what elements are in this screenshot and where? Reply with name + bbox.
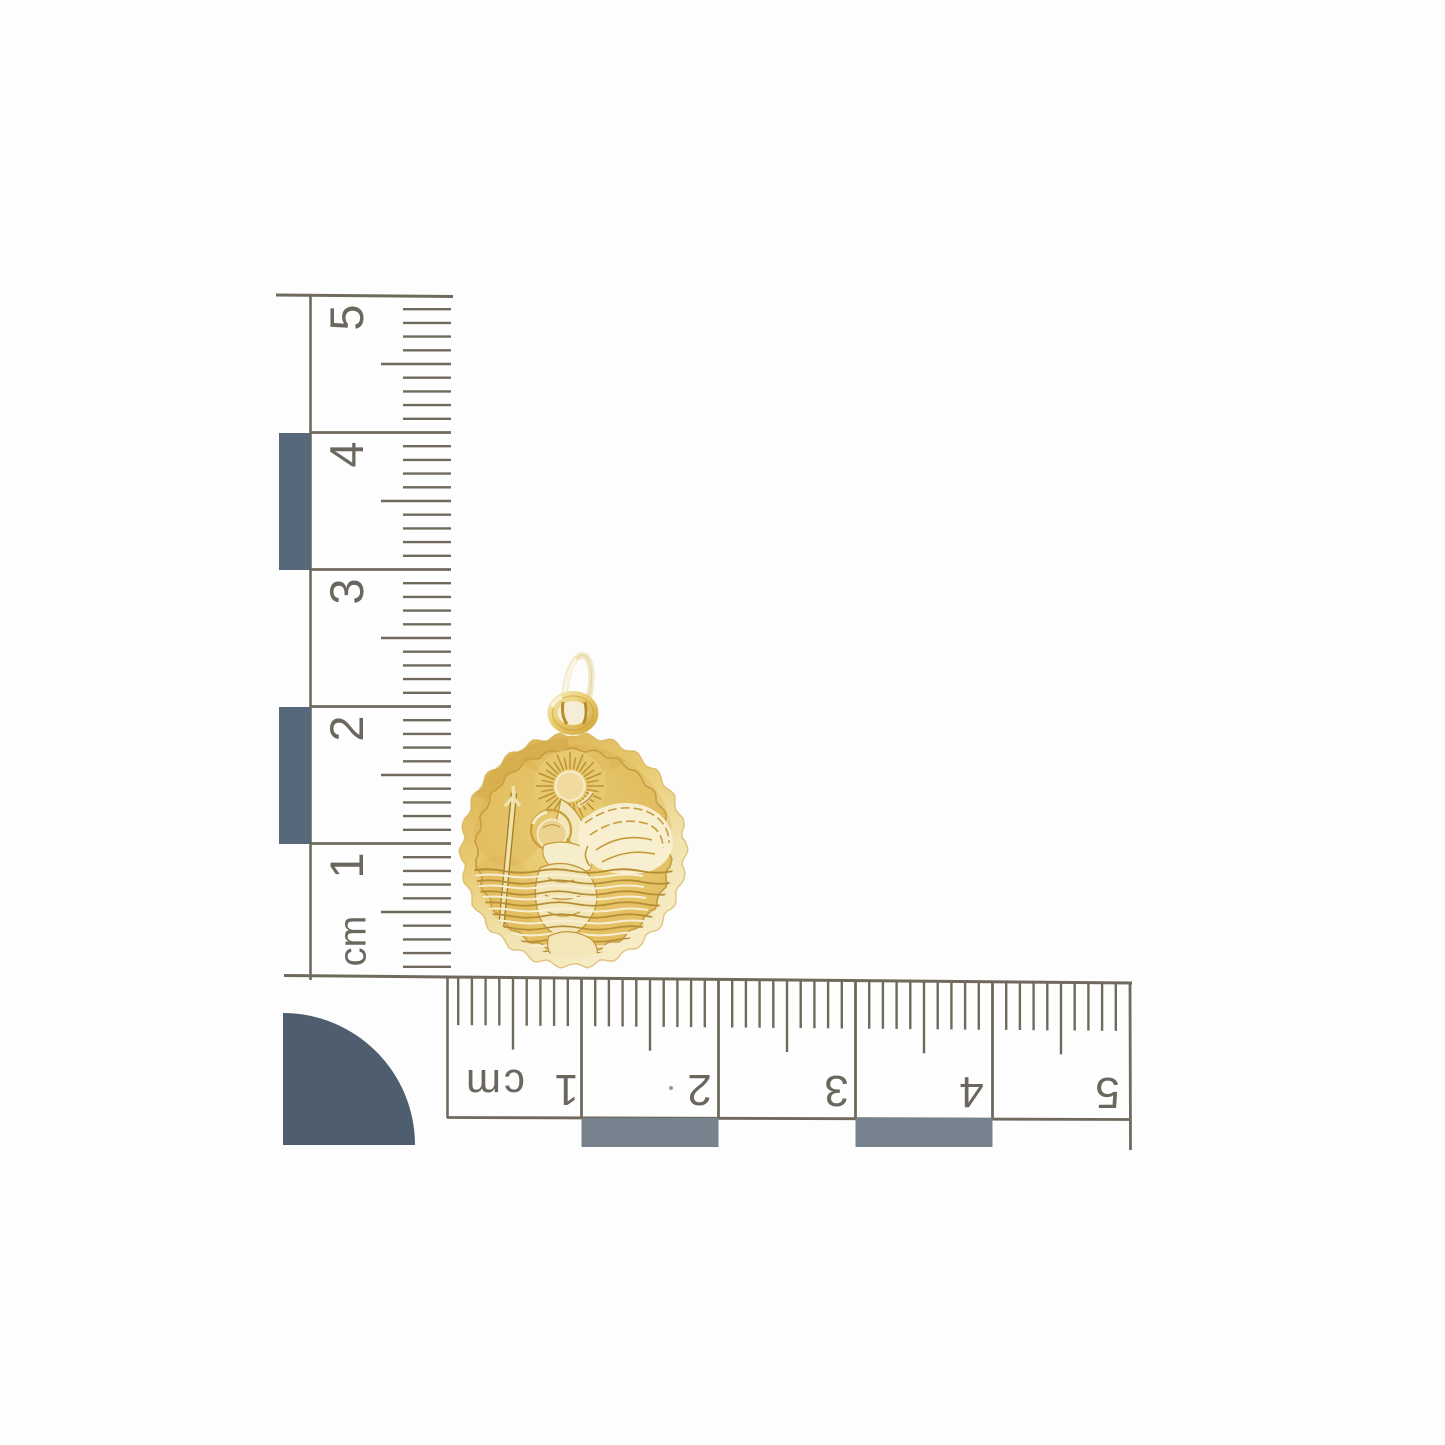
svg-text:2: 2 (687, 1065, 711, 1114)
svg-text:4: 4 (320, 441, 373, 467)
svg-text:cm: cm (463, 1061, 525, 1108)
svg-text:4: 4 (959, 1067, 983, 1116)
svg-text:5: 5 (320, 304, 373, 330)
svg-text:1: 1 (320, 852, 373, 878)
svg-text:3: 3 (320, 578, 373, 604)
svg-text:cm: cm (333, 916, 375, 967)
svg-text:2: 2 (320, 715, 373, 741)
svg-text:5: 5 (1095, 1068, 1119, 1117)
svg-text:1: 1 (554, 1065, 578, 1114)
svg-text:3: 3 (824, 1066, 848, 1115)
